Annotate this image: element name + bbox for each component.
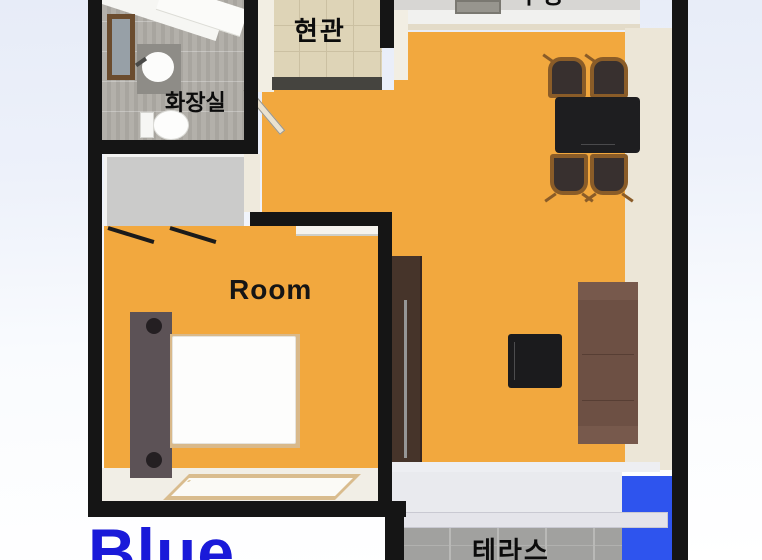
toilet-icon: [140, 112, 154, 138]
wall: [380, 0, 394, 48]
sofa-icon: [578, 282, 638, 444]
sliding-glass-door-icon: [392, 472, 622, 512]
kitchen-sink-icon: [455, 0, 501, 14]
bedroom-door: [296, 226, 378, 236]
entrance-label: 현관: [294, 18, 346, 44]
wall: [378, 212, 392, 512]
terrace-label: 테라스: [472, 538, 550, 560]
mirror-cabinet-icon: [107, 14, 135, 80]
kitchen-backsplash: [394, 0, 640, 10]
dining-chair-icon: [590, 57, 628, 98]
bedroom-label: Room: [229, 276, 312, 304]
wall-face: [244, 154, 260, 212]
window-icon: [163, 474, 361, 500]
sofa-armrest: [578, 282, 638, 300]
window-pane: [187, 480, 191, 482]
wardrobe-icon: [104, 154, 244, 226]
wall: [672, 0, 688, 560]
dining-chair-icon: [548, 57, 586, 98]
sofa-armrest: [578, 426, 638, 444]
blue-logo-text: Blue: [88, 519, 235, 560]
wall-face: [394, 0, 408, 80]
dining-chair-icon: [550, 154, 588, 195]
entrance-threshold: [272, 77, 382, 90]
dining-table-icon: [555, 97, 640, 153]
wall: [88, 140, 258, 154]
washbasin-icon: [137, 44, 181, 94]
kitchen-label: 주방: [518, 0, 566, 8]
door-sill: [385, 512, 668, 528]
wall: [250, 212, 392, 226]
wall: [244, 0, 258, 154]
dining-chair-icon: [590, 154, 628, 195]
bathroom-label: 화장실: [165, 92, 226, 114]
basin-bowl: [142, 52, 174, 82]
bedpost-knob: [146, 452, 162, 468]
bed-mattress: [172, 336, 296, 444]
sofa-seam: [582, 400, 634, 401]
tall-cabinet-icon: [392, 256, 422, 462]
wall: [88, 0, 102, 517]
wall: [385, 503, 404, 560]
coffee-table-icon: [508, 334, 562, 388]
floor-plan: 화장실 현관 주방 Room 테라스 Blue: [0, 0, 762, 560]
sliding-glass-door-icon: [392, 462, 660, 472]
bedpost-knob: [146, 318, 162, 334]
sofa-seam: [582, 354, 634, 355]
